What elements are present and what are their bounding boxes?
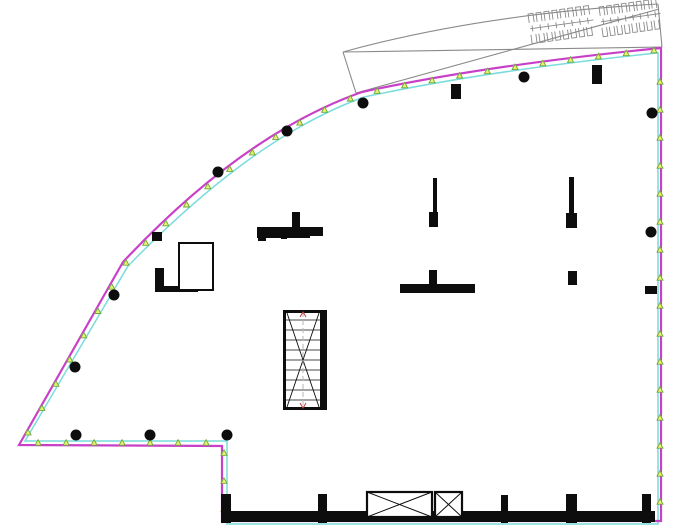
hatch-tooth-bottom — [578, 27, 584, 37]
column-rect — [451, 84, 461, 99]
canopy-outline — [658, 4, 662, 47]
column-rect — [501, 495, 508, 523]
canopy-layer — [343, 0, 663, 93]
floor-plan-drawing — [0, 0, 680, 530]
column-round — [646, 227, 657, 238]
building-outline-line — [19, 48, 661, 521]
tee-stem — [429, 270, 437, 285]
tee-stem — [292, 212, 300, 228]
hatch-tooth-top — [629, 2, 635, 12]
column-rect — [642, 494, 651, 523]
stair-wall-left — [283, 310, 286, 410]
staircase — [283, 310, 327, 410]
column-rect — [152, 232, 162, 241]
column-round — [282, 126, 293, 137]
canopy-hatch-cluster — [528, 5, 596, 44]
column-round — [222, 430, 233, 441]
hatch-tooth-bottom — [639, 22, 645, 32]
wall-segment — [569, 177, 574, 213]
canopy-outline — [343, 4, 658, 52]
hatch-tooth-top — [583, 6, 589, 16]
tee-wall — [257, 212, 323, 241]
hatch-tooth-bottom — [531, 34, 537, 44]
column-round — [519, 72, 530, 83]
boundary-layer — [19, 48, 661, 524]
tee-bar — [400, 284, 475, 293]
column-rect — [592, 65, 602, 84]
room-outline — [179, 243, 213, 290]
column-round — [70, 362, 81, 373]
column-round — [71, 430, 82, 441]
column-rect — [566, 213, 577, 228]
hatch-tooth-bottom — [646, 21, 652, 31]
column-rect — [318, 494, 327, 523]
hatch-tooth-bottom — [571, 29, 577, 39]
floor-plan-viewport[interactable] — [0, 0, 680, 530]
hatch-ladder-rail — [530, 20, 593, 29]
stair-wall-right — [320, 310, 327, 410]
canopy-outline — [343, 47, 662, 52]
hatch-tooth-top — [544, 11, 550, 21]
shaft-box — [435, 492, 462, 517]
tee-fixture — [258, 233, 266, 241]
survey-marker — [39, 405, 45, 411]
hatch-tooth-bottom — [617, 25, 623, 35]
structure-layer — [70, 65, 658, 523]
column-round — [145, 430, 156, 441]
hatch-tooth-top — [576, 7, 582, 17]
hatch-tooth-bottom — [654, 20, 660, 30]
hatch-tooth-top — [560, 9, 566, 19]
hatch-tooth-bottom — [555, 31, 561, 41]
wall-segment — [433, 178, 437, 212]
slab-edge-line — [25, 53, 658, 524]
column-rect — [568, 271, 577, 285]
column-rect — [221, 494, 231, 523]
hatch-tooth-top — [614, 4, 620, 14]
survey-marker — [25, 429, 31, 435]
hatch-tooth-top — [636, 1, 642, 11]
tee-bar — [257, 227, 323, 236]
column-round — [213, 167, 224, 178]
hatch-tooth-bottom — [609, 26, 615, 36]
shaft-box — [367, 492, 432, 517]
hatch-tooth-top — [528, 13, 534, 23]
column-round — [358, 98, 369, 109]
hatch-tooth-bottom — [624, 24, 630, 34]
column-round — [647, 108, 658, 119]
hatch-tooth-top — [536, 12, 542, 22]
column-rect — [566, 494, 577, 523]
hatch-tooth-top — [552, 10, 558, 20]
hatch-tooth-top — [621, 3, 627, 13]
stair-layer — [283, 310, 327, 410]
hatch-tooth-bottom — [602, 27, 608, 37]
canopy-outline — [343, 52, 356, 93]
column-round — [109, 290, 120, 301]
hatch-tooth-top — [606, 5, 612, 15]
tee-wall — [400, 270, 475, 293]
column-rect — [645, 286, 657, 294]
tee-fixture — [281, 233, 287, 239]
hatch-tooth-bottom — [632, 23, 638, 33]
hatch-tooth-top — [568, 8, 574, 18]
column-rect — [429, 212, 438, 227]
hatch-tooth-bottom — [547, 32, 553, 42]
